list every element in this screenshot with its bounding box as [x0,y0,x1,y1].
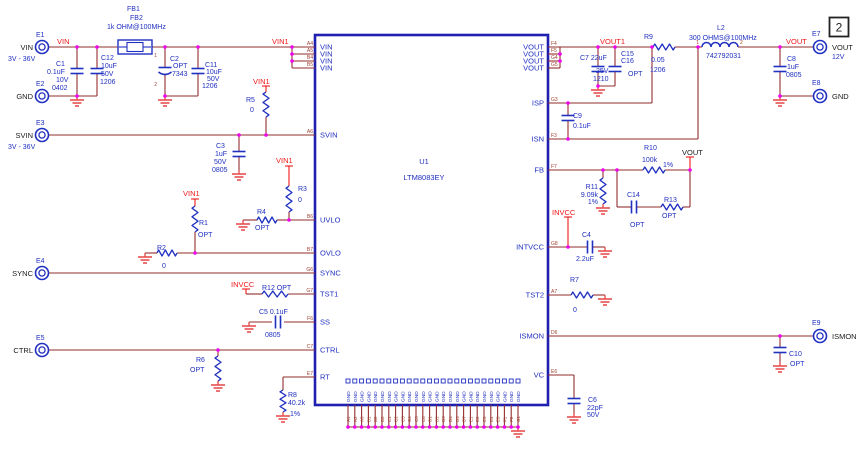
ic-pin-designator: A1 [346,416,351,422]
component-label: C6 [588,397,597,404]
component-label: R2 [157,245,166,252]
ic-pin-designator: D5 [455,416,460,422]
junction-dot [441,425,445,429]
ic-pin-name: FB [534,166,544,175]
terminal-name: VIN [20,43,33,52]
component-label: 0805 [786,72,802,79]
ic-pin-designator: D4 [448,416,453,422]
component-label: C9 [573,113,582,120]
ic-pin-designator: B3 [380,416,385,422]
ic-pin-designator: B1 [366,416,371,422]
component-label: R12 OPT [262,285,292,292]
ic-pin-designator: C4 [407,416,412,422]
component-label: 1 [154,53,157,59]
component-label: 1uF [215,151,227,158]
junction-dot [407,425,411,429]
component-label: 100k [642,157,658,164]
junction-dot [367,425,371,429]
gnd-pin-name: GND [407,391,413,402]
gnd-pin-name: GND [387,391,393,402]
junction-dot [414,425,418,429]
ic-pin-designator: D7 [462,416,467,422]
net-label: VIN1 [272,37,289,46]
component-label: OPT [190,367,205,374]
terminal-E9 [817,333,823,339]
junction-dot [455,425,459,429]
component-label: 40.2k [288,400,306,407]
junction-dot [193,251,197,255]
junction-dot [290,59,294,63]
component-label: 1% [663,162,673,169]
net-label: VIN [57,37,70,46]
ic-pin-designator: D1 [428,416,433,422]
gnd-pin-name: GND [353,391,359,402]
ic-pin-designator: A7 [551,289,557,295]
component-label: 2 [740,40,743,46]
terminal-E1 [36,41,49,54]
ic-pin-designator: D2 [434,416,439,422]
component-label: 0 [573,307,577,314]
ic-pin-name: VIN [320,64,333,73]
junction-dot [516,425,520,429]
junction-dot [462,425,466,429]
junction-dot [428,425,432,429]
ic-pin-designator: G7 [306,288,313,294]
terminal-name: GND [832,92,849,101]
terminal-E9 [814,330,827,343]
resistor-R4 [257,217,277,223]
ic-pin-name: UVLO [320,216,341,225]
component-label: C16 [621,58,634,65]
component-label: 0 [162,263,166,270]
net-label: VIN1 [253,77,270,86]
junction-dot [475,425,479,429]
ic-pin-designator: D6 [551,330,558,336]
ic-pin-designator: G8 [551,241,558,247]
gnd-pin-name: GND [516,391,522,402]
component-label: C12 [101,55,114,62]
terminal-rating: 3V - 36V [8,144,36,151]
component-label: R7 [570,277,579,284]
ferrite-bead-inner [127,43,143,52]
terminal-designator: E5 [36,335,45,342]
gnd-pin-name: GND [400,391,406,402]
gnd-pin-name: GND [373,391,379,402]
ic-pin-name: SVIN [320,131,338,140]
ic-pin-name: INTVCC [516,243,545,252]
ic-pin-designator: A4 [307,41,313,47]
gnd-pin-name: GND [421,391,427,402]
terminal-E2 [39,93,45,99]
gnd-pin-name: GND [475,391,481,402]
gnd-pin-name: GND [509,391,515,402]
junction-dot [75,45,79,49]
junction-dot [380,425,384,429]
component-label: FB1 [127,6,140,13]
terminal-E5 [36,344,49,357]
component-label: 10uF [101,63,117,70]
ic-pin-designator: F5 [551,48,557,54]
component-label: OPT [662,213,677,220]
gnd-pin-name: GND [441,391,447,402]
resistor-R11 [600,178,606,204]
ic-body [315,35,548,405]
net-label: VIN1 [276,156,293,165]
ic-pin-designator: G4 [551,55,558,61]
junction-dot [615,168,619,172]
ic-pin-name: VC [534,371,545,380]
component-label: 300 OHMS@100MHz [689,35,757,42]
junction-dot [596,84,600,88]
ic-pin-designator: B2 [373,416,378,422]
junction-dot [503,425,507,429]
terminal-designator: E9 [812,320,821,327]
net-label: INVCC [552,208,576,217]
terminal-name: CTRL [13,346,33,355]
component-label: 1210 [593,76,609,83]
terminal-designator: E4 [36,258,45,265]
terminal-E8 [817,93,823,99]
ic-ref-label: U1 [419,157,429,166]
component-label: 0.1uF [573,123,591,130]
junction-dot [401,425,405,429]
gnd-pin-name: GND [489,391,495,402]
capacitor-C2 [159,72,172,75]
resistor-R7 [571,292,593,298]
net-label: VIN1 [183,189,200,198]
ic-pin-designator: A3 [360,416,365,422]
terminal-designator: E7 [812,31,821,38]
component-label: VOUT [682,148,703,157]
junction-dot [264,133,268,137]
gnd-pin-name: GND [346,391,352,402]
resistor-R10 [643,167,665,173]
component-label: C15 [621,51,634,58]
junction-dot [373,425,377,429]
component-label: OPT [173,63,188,70]
ic-pin-designator: E3 [482,416,487,422]
ic-pin-name: TST2 [526,291,544,300]
ic-pin-designator: E4 [489,416,494,422]
ic-pin-name: CTRL [320,346,340,355]
component-label: 0805 [212,167,228,174]
component-label: 2.2uF [576,256,594,263]
inductor-L2 [702,43,738,48]
resistor-R5 [263,92,269,117]
terminal-E4 [39,270,45,276]
resistor-R1 [192,206,198,232]
ic-pin-designator: G6 [306,267,313,273]
junction-dot [387,425,391,429]
junction-dot [650,45,654,49]
component-label: R3 [298,186,307,193]
ic-pin-name: TST1 [320,290,338,299]
junction-dot [196,45,200,49]
terminal-E7 [817,44,823,50]
sheet-number: 2 [836,21,843,35]
component-label: 50V [101,71,114,78]
component-label: 7343 [172,71,188,78]
junction-dot [360,425,364,429]
net-label: INVCC [231,280,255,289]
component-label: 0 [250,107,254,114]
junction-dot [435,425,439,429]
gnd-pin-name: GND [448,391,454,402]
ic-pin-designator: F1 [502,416,507,422]
gnd-pin-name: GND [482,391,488,402]
gnd-pin-name: GND [366,391,372,402]
component-label: 10uF [206,69,222,76]
component-label: R10 [644,145,657,152]
junction-dot [496,425,500,429]
component-label: C14 [627,192,640,199]
gnd-pin-name: GND [455,391,461,402]
terminal-designator: E1 [36,32,45,39]
terminal-rating: 12V [832,54,845,61]
junction-dot [163,94,167,98]
component-label: C2 [170,56,179,63]
component-label: C1 [56,61,65,68]
ic-pin-designator: F6 [307,316,313,322]
ic-pin-designator: F2 [509,416,514,422]
junction-dot [287,218,291,222]
component-label: 1206 [650,67,666,74]
component-label: 25V [596,68,609,75]
component-label: 2 [154,82,157,88]
ic-pin-designator: C1 [387,416,392,422]
ic-pin-designator: E7 [307,371,313,377]
terminal-designator: E2 [36,81,45,88]
ic-pin-designator: B6 [307,214,313,220]
component-label: 0 [298,197,302,204]
junction-dot [566,137,570,141]
gnd-pin-name: GND [434,391,440,402]
junction-dot [216,348,220,352]
component-label: R4 [257,209,266,216]
component-label: 1 [696,40,699,46]
resistor-R9 [653,44,675,50]
component-label: R8 [288,392,297,399]
junction-dot [566,245,570,249]
component-label: R6 [196,357,205,364]
ic-pin-designator: B5 [307,62,313,68]
terminal-E4 [36,267,49,280]
gnd-pin-name: GND [468,391,474,402]
component-label: R13 [664,197,677,204]
component-label: C10 [789,351,802,358]
junction-dot [95,45,99,49]
component-label: L2 [717,25,725,32]
component-label: C4 [582,232,591,239]
component-label: C7 22uF [580,55,607,62]
ic-pin-designator: C6 [421,416,426,422]
component-label: 1% [588,199,598,206]
ic-pin-name: RT [320,373,330,382]
terminal-name: ISMON [832,332,857,341]
ic-pin-designator: F3 [551,133,557,139]
ic-pin-designator: E5 [496,416,501,422]
terminal-E3 [36,129,49,142]
component-label: C11 [205,62,217,69]
ic-pin-designator: A2 [353,416,358,422]
junction-dot [601,168,605,172]
ic-pin-designator: A5 [307,48,313,54]
terminal-name: VOUT [832,43,853,52]
junction-dot [237,133,241,137]
terminal-name: SVIN [15,131,33,140]
ic-pin-designator: C2 [394,416,399,422]
junction-dot [482,425,486,429]
terminal-rating: 3V - 36V [8,56,36,63]
junction-dot [346,425,350,429]
net-label: VOUT1 [600,37,625,46]
gnd-pin-name: GND [414,391,420,402]
ic-pin-designator: E6 [551,369,557,375]
ic-pin-designator: G5 [551,62,558,68]
resistor-R3 [286,186,292,212]
component-label: OPT [198,232,213,239]
component-label: OPT [255,225,270,232]
schematic-page: U1 LTM8083EY 2 A4VINA5VINB4VINB5VINA6SVI… [0,0,861,452]
ic-pin-designator: D3 [441,416,446,422]
component-label: 1k OHM@100MHz [107,24,166,31]
component-label: R9 [644,34,653,41]
ic-pin-designator: C3 [400,416,405,422]
terminal-name: SYNC [12,269,33,278]
gnd-pin-name: GND [462,391,468,402]
gnd-pin-name: GND [380,391,386,402]
junction-dot [394,425,398,429]
terminal-E1 [39,44,45,50]
junction-dot [163,45,167,49]
component-label: C8 [787,56,796,63]
terminal-E2 [36,90,49,103]
junction-dot [688,168,692,172]
component-label: R11 [586,184,598,191]
component-label: OPT [630,222,645,229]
junction-dot [353,425,357,429]
resistor-R6 [215,356,221,381]
ic-pin-name: ISP [532,99,544,108]
ic-pin-name: SS [320,318,330,327]
ic-pin-designator: C5 [414,416,419,422]
resistor-R13 [661,204,683,210]
junction-dot [778,45,782,49]
component-label: OPT [628,71,643,78]
component-label: 1uF [787,64,799,71]
ic-pin-designator: G1 [516,415,521,422]
junction-dot [558,59,562,63]
component-label: 50V [587,412,600,419]
component-label: R1 [199,220,208,227]
component-label: OPT [790,361,805,368]
component-label: 9.09k [581,192,599,199]
junction-dot [290,45,294,49]
gnd-pin-name: GND [394,391,400,402]
ic-pin-name: SYNC [320,269,341,278]
terminal-E3 [39,132,45,138]
terminal-E5 [39,347,45,353]
ic-part-label: LTM8083EY [403,173,444,182]
terminal-designator: E3 [36,120,45,127]
ic-pin-designator: A6 [307,129,313,135]
component-label: 22pF [587,405,603,412]
junction-dot [489,425,493,429]
component-label: 1% [290,411,300,418]
junction-dot [509,425,513,429]
ic-pin-name: ISN [531,135,544,144]
net-label: VOUT [786,37,807,46]
gnd-pin-name: GND [428,391,434,402]
junction-dot [421,425,425,429]
component-label: 742792031 [706,53,741,60]
junction-dot [778,334,782,338]
component-label: 10V [56,77,69,84]
gnd-pin-name: GND [502,391,508,402]
gnd-pin-name: GND [360,391,366,402]
ic-pin-designator: E1 [468,416,473,422]
gnd-pin-name: GND [496,391,502,402]
junction-dot [448,425,452,429]
ic-pin-designator: F7 [551,164,557,170]
component-label: 50V [207,76,220,83]
ic-pin-name: VOUT [523,64,544,73]
junction-dot [566,101,570,105]
component-label: 0.05 [651,57,665,64]
terminal-designator: E8 [812,80,821,87]
component-label: R5 [246,97,255,104]
component-label: 0402 [52,85,68,92]
junction-dot [558,52,562,56]
component-label: 50V [214,159,227,166]
junction-dot [75,94,79,98]
component-label: C5 0.1uF [259,309,288,316]
ic-pin-name: OVLO [320,249,341,258]
ic-pin-designator: B7 [307,247,313,253]
ic-pin-designator: C7 [307,344,314,350]
component-label: C3 [216,143,225,150]
terminal-E8 [814,90,827,103]
schematic: U1 LTM8083EY 2 A4VINA5VINB4VINB5VINA6SVI… [0,0,861,452]
terminal-E7 [814,41,827,54]
junction-dot [778,94,782,98]
junction-dot [290,52,294,56]
ic-pin-designator: B4 [307,55,313,61]
ic-pin-designator: F4 [551,41,557,47]
component-label: 0.1uF [47,69,65,76]
ic-pin-name: ISMON [519,332,544,341]
resistor-R8 [280,390,286,412]
component-label: 1206 [202,83,218,90]
terminal-name: GND [16,92,33,101]
junction-dot [469,425,473,429]
component-label: FB2 [130,15,143,22]
ic-pin-designator: E2 [475,416,480,422]
component-label: 0805 [265,332,281,339]
component-label: 1206 [100,79,116,86]
ic-pin-designator: G3 [551,97,558,103]
